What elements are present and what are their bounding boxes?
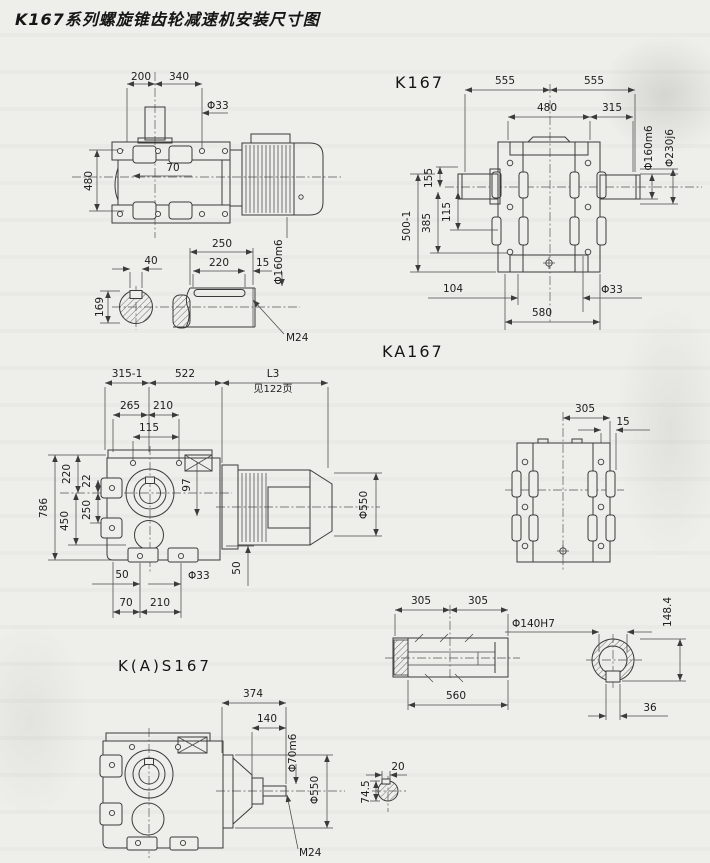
k167-housing <box>458 137 640 272</box>
dim-label: 200 <box>131 71 151 83</box>
dim-label: 22 <box>81 474 93 487</box>
dim-label: 555 <box>495 75 515 87</box>
dim-label: 220 <box>209 257 229 269</box>
dim-label: 305 <box>468 595 488 607</box>
dim-label: M24 <box>286 332 309 344</box>
dim-label: 20 <box>391 761 404 773</box>
dim-label: 786 <box>38 498 50 518</box>
dim-label: 50 <box>231 561 243 574</box>
motor <box>230 134 323 238</box>
dim-label: 210 <box>150 597 170 609</box>
dim-label: 210 <box>153 400 173 412</box>
dim-label: 305 <box>575 403 595 415</box>
dim-label: Φ550 <box>309 776 321 804</box>
dim-label: 305 <box>411 595 431 607</box>
dim-label: 97 <box>181 478 193 491</box>
dim-label: 385 <box>421 213 433 233</box>
scanned-catalog-page: { "title": "K167系列螺旋锥齿轮减速机安装尺寸图", "secti… <box>0 0 710 863</box>
rear-housing <box>512 439 615 562</box>
output-shaft-detail: 40 169 250 220 15 Φ160m6 M24 <box>94 238 309 344</box>
input-shaft-section-detail: 20 74.5 <box>360 761 407 812</box>
dim-label: 140 <box>257 713 277 725</box>
shaft-side-view <box>173 288 255 328</box>
dim-label: 148.4 <box>662 597 674 627</box>
dim-label: 560 <box>446 690 466 702</box>
kas167-front-view: K(A)S167 374 140 Φ70m6 Φ550 <box>100 657 407 859</box>
k167-front-view: K167 555 555 480 315 <box>395 73 702 330</box>
dim-label: Φ550 <box>358 491 370 519</box>
dim-label: 340 <box>169 71 189 83</box>
dim-label: 480 <box>83 171 95 191</box>
dim-label: Φ140H7 <box>512 618 555 630</box>
dim-label: Φ70m6 <box>287 733 299 772</box>
dim-label: 265 <box>120 400 140 412</box>
dim-label: 374 <box>243 688 263 700</box>
dim-label: M24 <box>299 847 322 859</box>
ka167-motor <box>216 465 380 549</box>
dim-label: Φ33 <box>188 570 210 582</box>
dim-label: 15 <box>616 416 629 428</box>
dim-label: L3 <box>267 368 280 380</box>
view-label: KA167 <box>382 342 444 361</box>
dim-label: Φ160m6 <box>273 239 285 285</box>
dim-label: Φ33 <box>601 284 623 296</box>
dim-label: 250 <box>81 500 93 520</box>
dim-label: 74.5 <box>360 780 372 803</box>
dim-label: Φ33 <box>207 100 229 112</box>
dim-label: 104 <box>443 283 463 295</box>
dim-label: 220 <box>61 464 73 484</box>
dim-label: 480 <box>537 102 557 114</box>
rear-housing-view: 305 15 <box>505 403 650 572</box>
hollow-shaft-section <box>586 634 642 688</box>
dim-label: 155 <box>423 168 435 188</box>
dim-label: 450 <box>59 511 71 531</box>
dim-label: 169 <box>94 297 106 317</box>
ka167-housing <box>101 446 220 572</box>
dim-note: 见122页 <box>253 383 292 395</box>
dim-label: 250 <box>212 238 232 250</box>
dim-label: 115 <box>441 202 453 222</box>
dim-label: 115 <box>139 422 159 434</box>
technical-drawing: 200 340 Φ33 480 70 <box>0 0 710 863</box>
dim-label: Φ160m6 <box>643 125 655 171</box>
dim-label: 315-1 <box>112 368 143 380</box>
dim-label: 70 <box>119 597 132 609</box>
view-label: K(A)S167 <box>118 657 212 675</box>
dim-label: 40 <box>144 255 157 267</box>
dim-label: 70 <box>166 162 179 174</box>
dim-label: 555 <box>584 75 604 87</box>
ka167-front-view: KA167 315-1 522 L3 见122页 265 210 115 786… <box>38 342 444 618</box>
dim-label: 36 <box>643 702 657 714</box>
dim-label: 580 <box>532 307 552 319</box>
dim-label: 50 <box>115 569 128 581</box>
dim-label: Φ230j6 <box>664 129 676 167</box>
dim-label: 522 <box>175 368 195 380</box>
dim-label: 500-1 <box>401 211 413 242</box>
view-label: K167 <box>395 73 444 92</box>
hollow-shaft-side <box>385 634 520 682</box>
dim-label: 315 <box>602 102 622 114</box>
hollow-shaft-detail: 305 305 560 Φ140H7 <box>385 595 686 720</box>
dim-label: 15 <box>256 257 269 269</box>
side-view-with-motor: 200 340 Φ33 480 70 <box>72 71 341 238</box>
